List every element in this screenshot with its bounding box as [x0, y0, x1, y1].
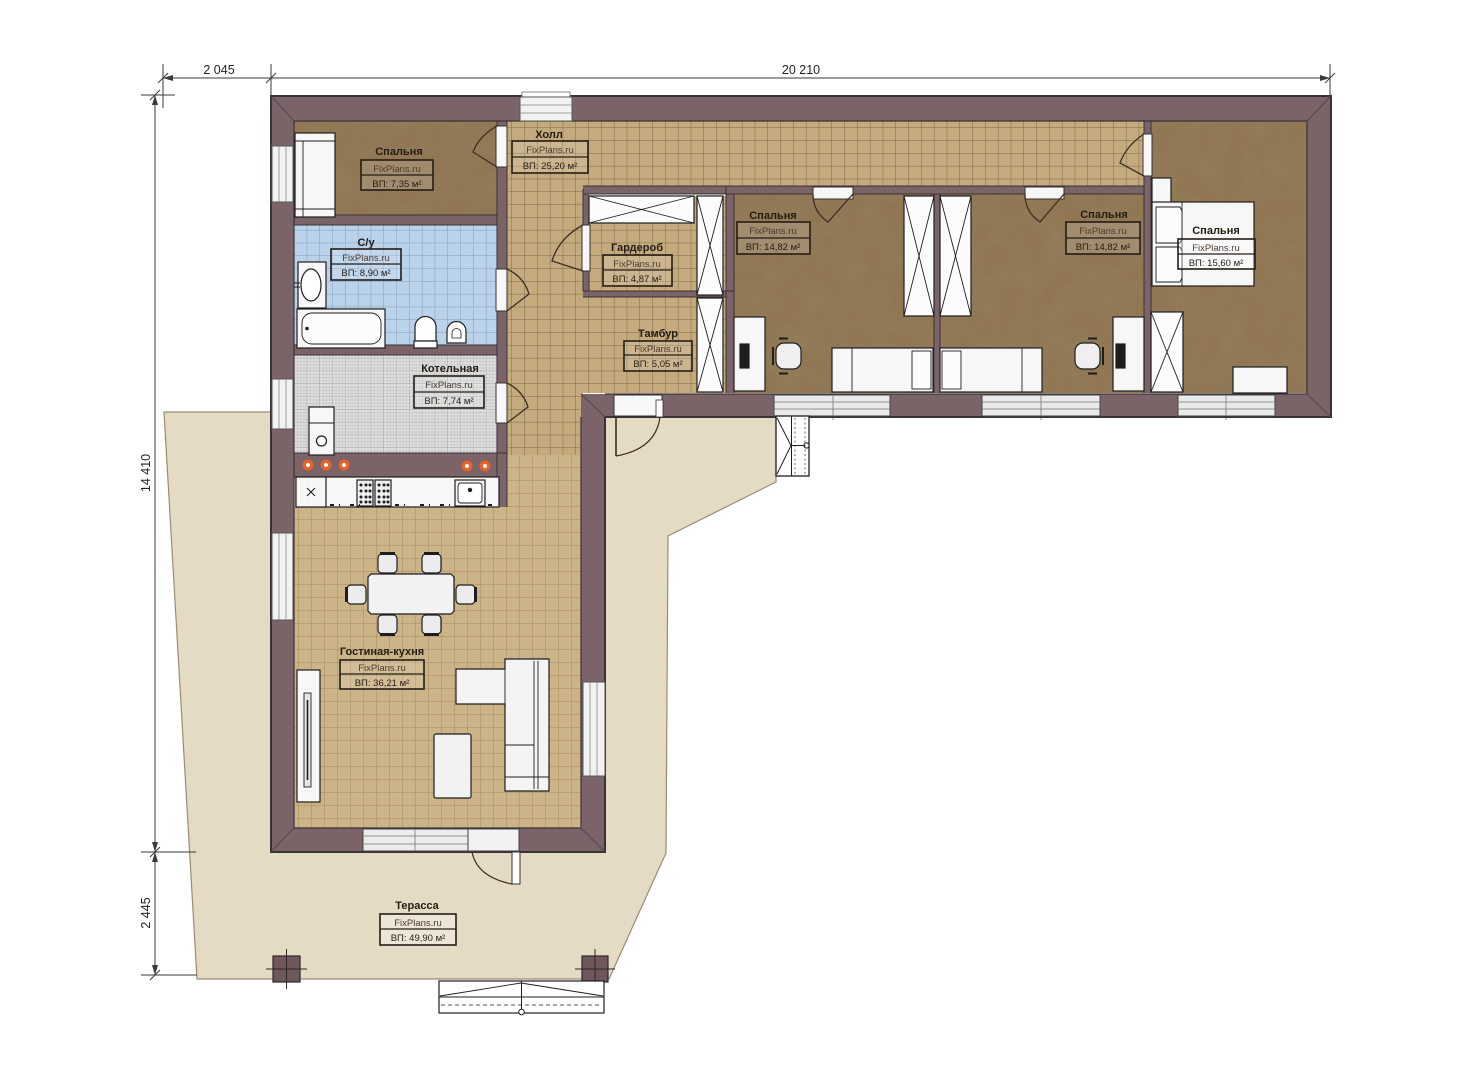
svg-text:Спальня: Спальня [375, 146, 423, 158]
svg-text:FixPlans.ru: FixPlans.ru [1192, 243, 1240, 254]
svg-text:FixPlans.ru: FixPlans.ru [1079, 226, 1127, 237]
svg-text:ВП: 7,35 м²: ВП: 7,35 м² [372, 179, 421, 190]
svg-text:Гостиная-кухня: Гостиная-кухня [340, 646, 424, 658]
svg-text:Терасса: Терасса [395, 900, 439, 912]
svg-text:ВП: 49,90 м²: ВП: 49,90 м² [391, 933, 446, 944]
svg-text:FixPlans.ru: FixPlans.ru [394, 918, 442, 929]
svg-text:ВП: 36,21 м²: ВП: 36,21 м² [355, 678, 410, 689]
svg-text:ВП: 7,74 м²: ВП: 7,74 м² [424, 396, 473, 407]
svg-text:ВП: 25,20 м²: ВП: 25,20 м² [523, 161, 578, 172]
svg-text:Котельная: Котельная [421, 363, 479, 375]
svg-text:FixPlans.ru: FixPlans.ru [634, 344, 682, 355]
svg-text:FixPlans.ru: FixPlans.ru [358, 663, 406, 674]
svg-text:Спальня: Спальня [1080, 209, 1128, 221]
svg-text:Холл: Холл [535, 129, 563, 141]
svg-text:Спальня: Спальня [1192, 225, 1240, 237]
svg-text:2 045: 2 045 [203, 63, 234, 77]
svg-text:FixPlans.ru: FixPlans.ru [613, 259, 661, 270]
svg-text:20 210: 20 210 [782, 63, 820, 77]
svg-text:Тамбур: Тамбур [638, 328, 678, 340]
svg-text:FixPlans.ru: FixPlans.ru [526, 145, 574, 156]
svg-text:FixPlans.ru: FixPlans.ru [373, 164, 421, 175]
svg-text:ВП: 8,90 м²: ВП: 8,90 м² [341, 268, 390, 279]
svg-text:ВП: 15,60 м²: ВП: 15,60 м² [1189, 258, 1244, 269]
svg-text:14 410: 14 410 [139, 454, 153, 492]
svg-text:ВП: 5,05 м²: ВП: 5,05 м² [633, 359, 682, 370]
svg-text:FixPlans.ru: FixPlans.ru [425, 380, 473, 391]
svg-text:FixPlans.ru: FixPlans.ru [342, 253, 390, 264]
svg-text:Гардероб: Гардероб [611, 242, 663, 254]
svg-text:Спальня: Спальня [749, 210, 797, 222]
svg-text:ВП: 14,82 м²: ВП: 14,82 м² [746, 242, 801, 253]
svg-text:ВП: 4,87 м²: ВП: 4,87 м² [612, 274, 661, 285]
svg-text:2 445: 2 445 [139, 897, 153, 928]
svg-text:С/у: С/у [357, 237, 375, 249]
svg-text:ВП: 14,82 м²: ВП: 14,82 м² [1076, 242, 1131, 253]
svg-text:FixPlans.ru: FixPlans.ru [749, 226, 797, 237]
